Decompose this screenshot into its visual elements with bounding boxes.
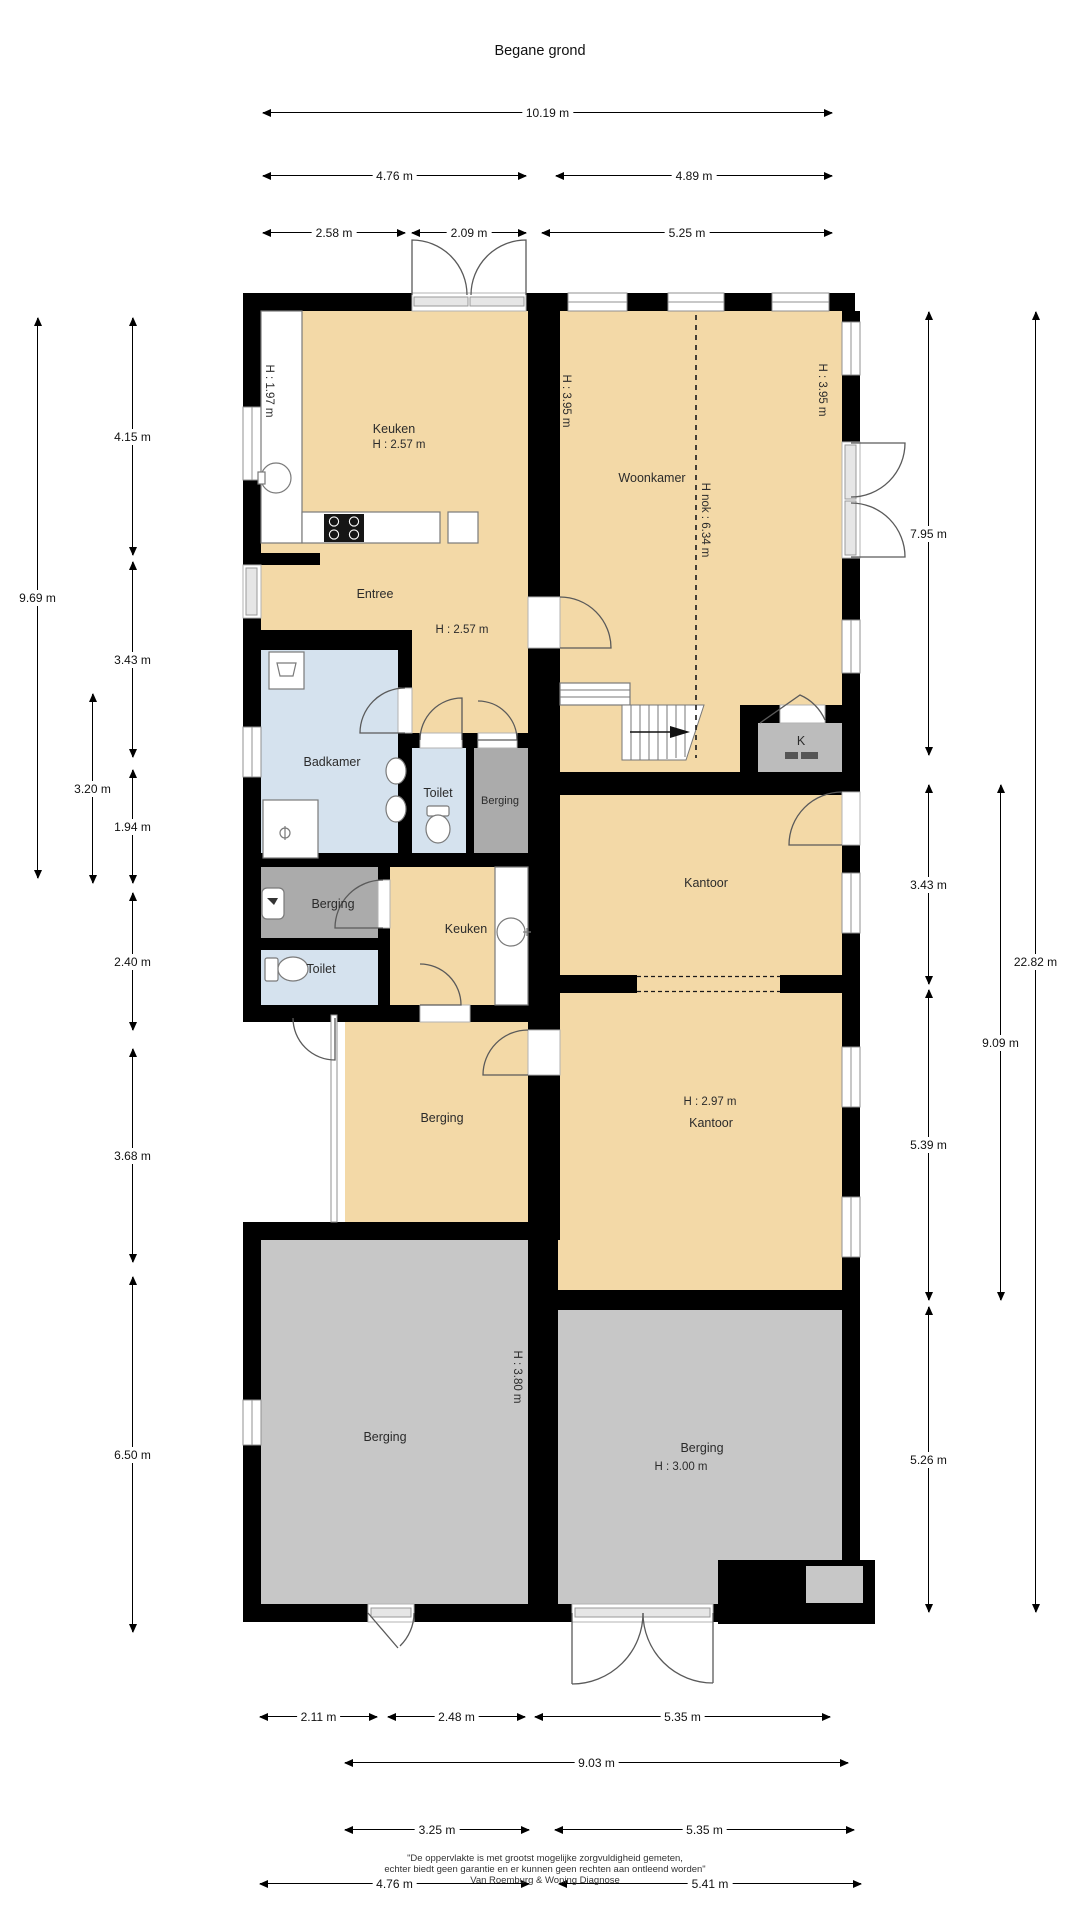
- dim-left-seg-6: 6.50 m: [132, 1277, 133, 1632]
- dim-top-seg-2: 2.09 m: [412, 232, 526, 233]
- dim-left-seg-4: 2.40 m: [132, 893, 133, 1030]
- room-label-badkamer: Badkamer: [304, 755, 361, 769]
- door-icon: [368, 1604, 414, 1648]
- window-icon: [842, 873, 860, 933]
- dim-left-seg-3: 1.94 m: [132, 770, 133, 883]
- dim-top-seg-1: 2.58 m: [263, 232, 405, 233]
- window-icon: [243, 407, 261, 480]
- room-label-berging-small: Berging: [481, 795, 519, 807]
- dim-right-seg-4: 5.26 m: [928, 1307, 929, 1612]
- dim-right-total: 22.82 m: [1035, 312, 1036, 1612]
- room-height-berging-left: H : 3.80 m: [511, 1350, 523, 1403]
- disclaimer-line-3: Van Roemburg & Woning Diagnose: [205, 1875, 885, 1886]
- room-label-berging-left: Berging: [363, 1430, 406, 1444]
- room-label-woonkamer: Woonkamer: [618, 471, 685, 485]
- room-label-berging-right: Berging: [680, 1441, 723, 1455]
- room-height-entree: H : 2.57 m: [435, 624, 488, 636]
- dim-bottom-seg-2: 2.48 m: [388, 1716, 525, 1717]
- dim-left-seg-1: 4.15 m: [132, 318, 133, 555]
- shower-icon: [263, 800, 318, 858]
- utility-sink-icon: [262, 888, 284, 919]
- window-icon: [568, 293, 627, 311]
- room-height-keuken-1: H : 2.57 m: [372, 439, 425, 451]
- room-height-kantoor-2: H : 2.97 m: [683, 1096, 736, 1108]
- room-label-berging-overkapping: Berging: [420, 1111, 463, 1125]
- dim-left-seg-2: 3.43 m: [132, 562, 133, 757]
- floorplan-drawing: [0, 0, 1080, 1920]
- toilet-icon: [426, 806, 450, 843]
- window-icon: [243, 1400, 261, 1445]
- dim-bottom-total: 9.03 m: [345, 1762, 848, 1763]
- washer-icon: [269, 652, 304, 689]
- dim-top-right-half: 4.89 m: [556, 175, 832, 176]
- room-label-kantoor-1: Kantoor: [684, 876, 728, 890]
- dim-left-seg-5: 3.68 m: [132, 1049, 133, 1262]
- disclaimer: "De oppervlakte is met grootst mogelijke…: [205, 1853, 885, 1886]
- toilet-icon: [265, 957, 308, 981]
- ridge-height-label: H nok : 6.34 m: [699, 483, 711, 558]
- disclaimer-line-2: echter biedt geen garantie en er kunnen …: [205, 1864, 885, 1875]
- washbasin-icon: [386, 758, 406, 784]
- dim-left-total-upper: 9.69 m: [37, 318, 38, 878]
- dashed-opening: [637, 975, 780, 993]
- room-label-keuken-1: Keuken: [373, 422, 415, 436]
- dim-right-seg-1: 7.95 m: [928, 312, 929, 755]
- dim-bottom-seg-1: 2.11 m: [260, 1716, 377, 1717]
- dim-right-seg-2: 3.43 m: [928, 785, 929, 984]
- dim-right-seg-3: 5.39 m: [928, 990, 929, 1300]
- double-door-icon: [412, 240, 526, 311]
- dim-bottom-seg-4: 3.25 m: [345, 1829, 529, 1830]
- wall-height-woonkamer-left: H : 3.95 m: [560, 374, 572, 427]
- window-icon: [772, 293, 829, 311]
- dim-bottom-seg-3: 5.35 m: [535, 1716, 830, 1717]
- dim-left-mid: 3.20 m: [92, 694, 93, 883]
- room-label-toilet-2: Toilet: [306, 962, 335, 976]
- window-icon: [842, 1197, 860, 1257]
- stove-icon: [324, 514, 364, 542]
- wall-height-woonkamer-right: H : 3.95 m: [816, 363, 828, 416]
- room-berging-right: [558, 1310, 842, 1604]
- door-icon: [293, 1018, 335, 1060]
- dim-bottom-seg-5: 5.35 m: [555, 1829, 854, 1830]
- disclaimer-line-1: "De oppervlakte is met grootst mogelijke…: [205, 1853, 885, 1864]
- dim-top-seg-3: 5.25 m: [542, 232, 832, 233]
- room-label-entree: Entree: [357, 587, 394, 601]
- double-door-icon: [572, 1604, 713, 1684]
- window-icon: [668, 293, 724, 311]
- dim-top-total: 10.19 m: [263, 112, 832, 113]
- window-icon: [842, 322, 860, 375]
- room-kantoor-2: [558, 993, 842, 1290]
- washbasin-icon: [386, 796, 406, 822]
- window-icon: [243, 727, 261, 777]
- wall-height-keuken: H : 1.97 m: [263, 364, 275, 417]
- room-label-toilet-1: Toilet: [423, 786, 452, 800]
- room-label-keuken-2: Keuken: [445, 922, 487, 936]
- door-icon: [243, 565, 261, 618]
- window-icon: [842, 1047, 860, 1107]
- window-icon: [842, 620, 860, 673]
- room-berging-left: [261, 1240, 528, 1604]
- room-label-berging-mid: Berging: [311, 897, 354, 911]
- dim-top-left-half: 4.76 m: [263, 175, 526, 176]
- glass-partition: [331, 1015, 337, 1222]
- room-height-berging-right: H : 3.00 m: [654, 1461, 707, 1473]
- dim-right-offices: 9.09 m: [1000, 785, 1001, 1300]
- corner-nook: [806, 1566, 863, 1603]
- room-label-kantoor-2: Kantoor: [689, 1116, 733, 1130]
- double-door-icon: [842, 442, 905, 558]
- floorplan-page: Begane grond: [0, 0, 1080, 1920]
- meter-cabinet-icon: [785, 752, 818, 759]
- room-label-kast: K: [797, 734, 805, 748]
